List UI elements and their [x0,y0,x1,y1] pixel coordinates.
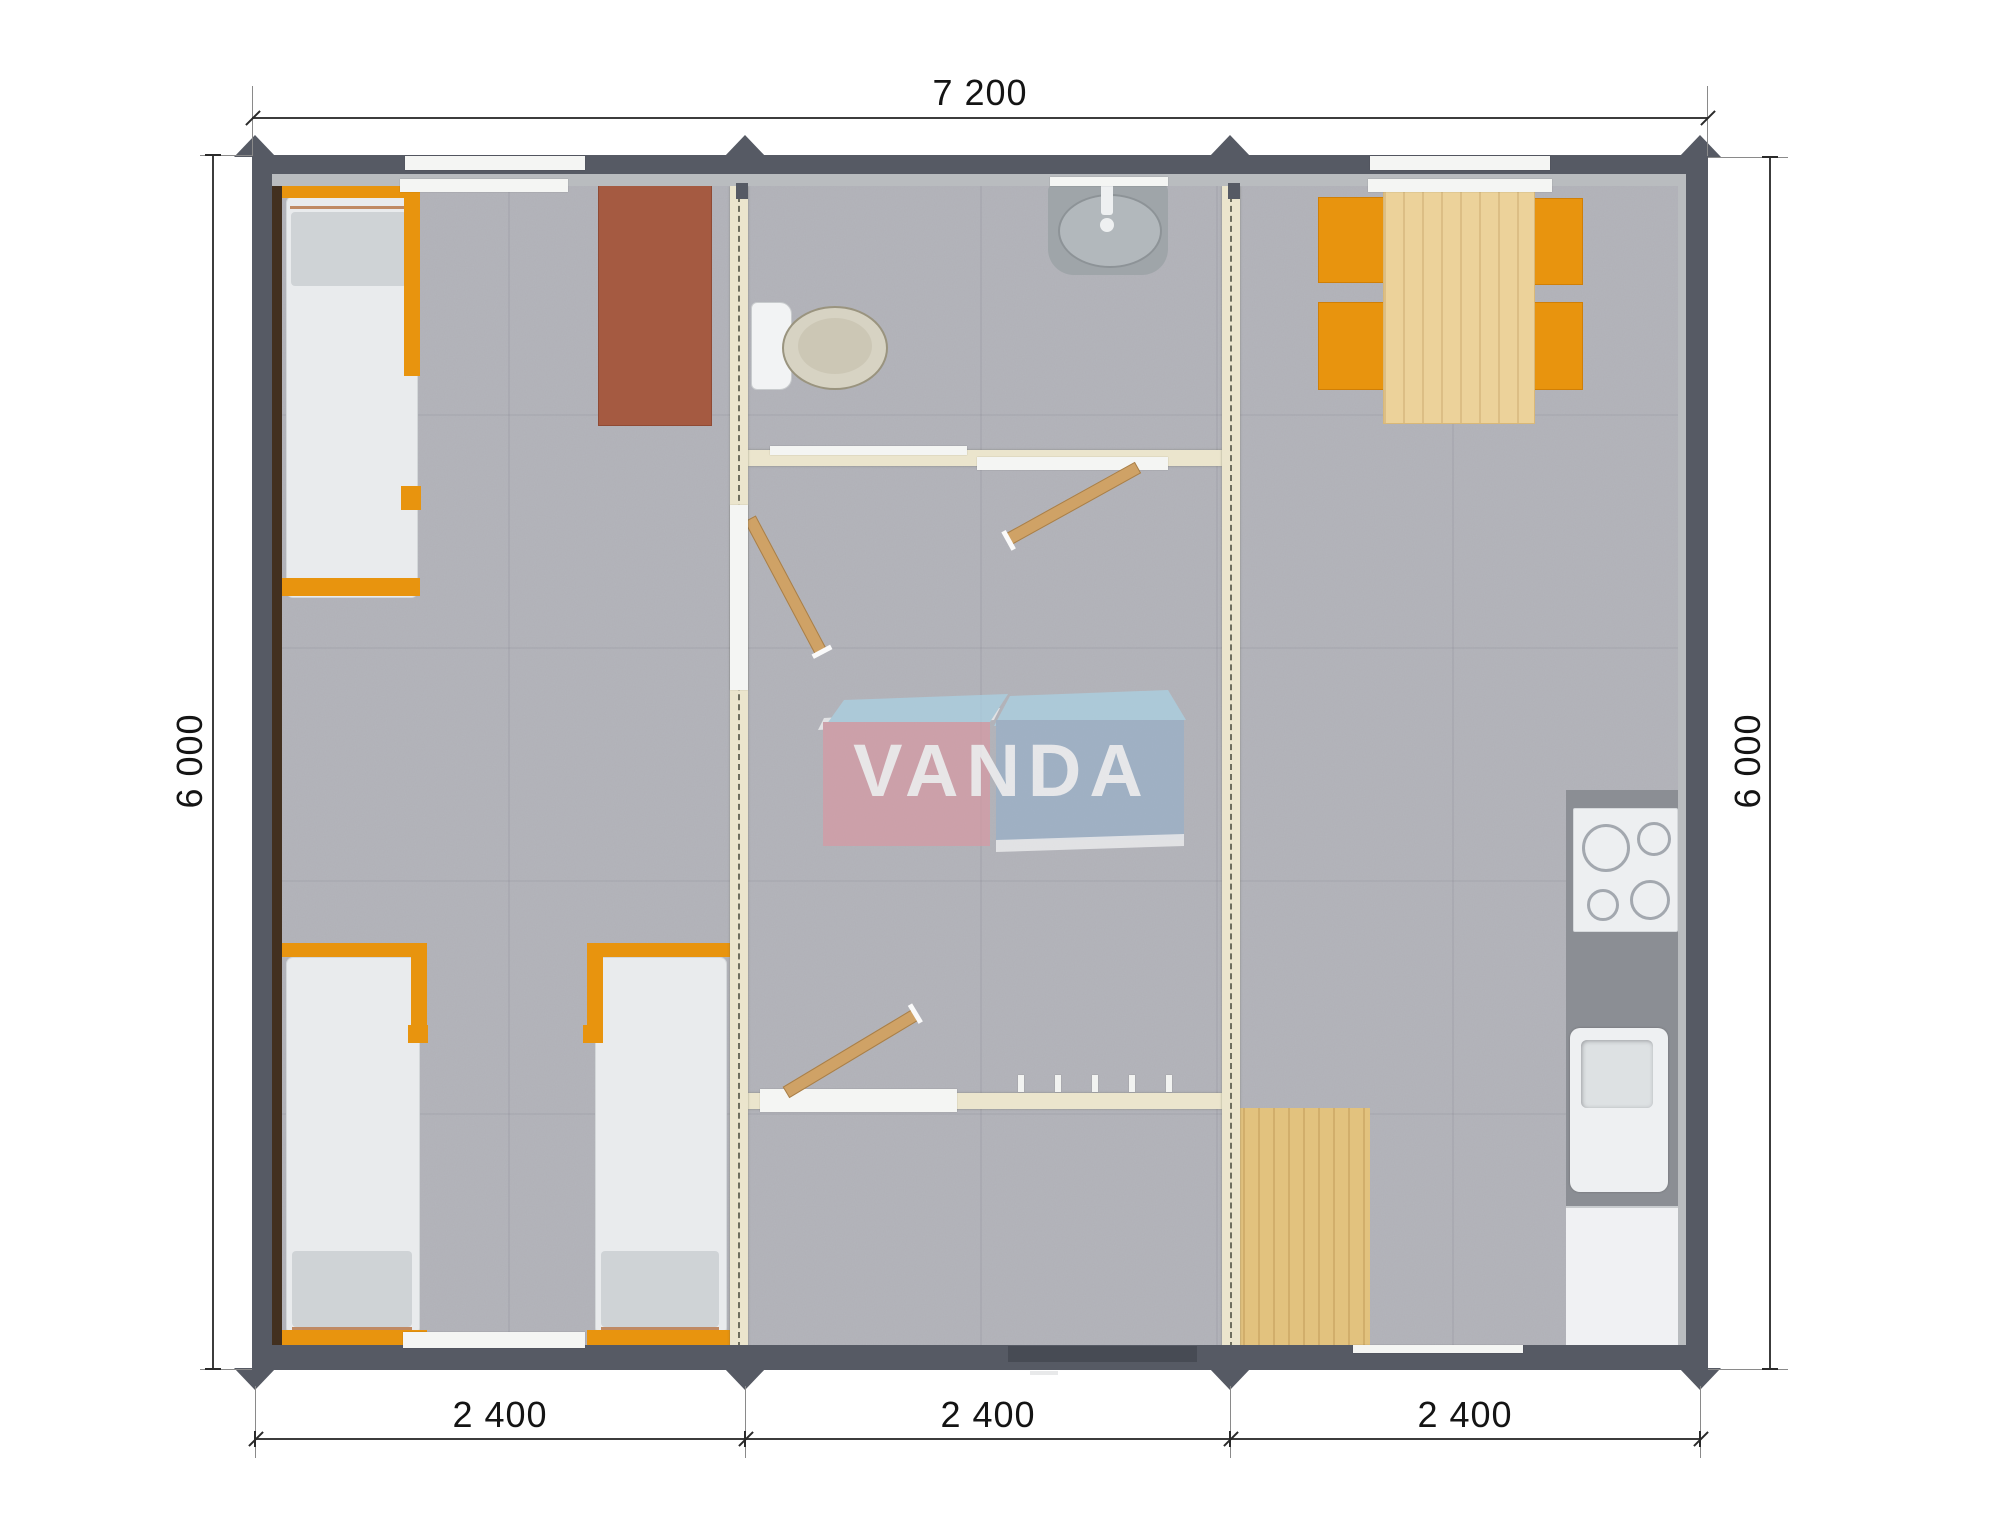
junction-center-line [1230,186,1232,1348]
junction-marker-top [234,135,276,157]
dimension-label-depth-left: 6 000 [169,661,211,861]
dimension-line [255,1438,1700,1440]
dimension-label-depth-right: 6 000 [1727,661,1769,861]
bed-pillow [291,212,407,286]
dimension-label-module2: 2 400 [888,1394,1088,1436]
extension-line [1700,1386,1701,1458]
chair [1318,302,1388,390]
bedroom-door-opening [730,505,748,690]
bed-headboard-line [290,206,410,209]
vanda-logo-text: VANDA [812,728,1192,813]
junction-marker-top [1679,135,1721,157]
chair [1527,198,1583,285]
faucet-knob [1100,218,1114,232]
wardrobe [598,183,712,426]
junction-center-line [738,186,740,1348]
dimension-label-module1: 2 400 [400,1394,600,1436]
junction-tab [1228,183,1240,199]
dimension-line [252,117,1708,119]
junction-tab [736,183,748,199]
bed-frame-top-rail [587,943,731,957]
cooktop-burner [1637,822,1671,856]
junction-marker-top [724,135,766,157]
window-outer-module3 [1370,156,1550,170]
wc-wall-sill [770,446,967,455]
bed-frame-post [583,1025,603,1043]
coat-hook [1166,1075,1172,1092]
bed-frame-side-rail [587,943,603,1031]
bed-pillow [292,1251,412,1327]
cooktop-burner [1630,880,1670,920]
dimension-cross [205,1368,221,1370]
toilet-seat [798,318,872,374]
coat-hook [1055,1075,1061,1092]
chair [1318,197,1388,283]
extension-line [255,1386,256,1458]
vanda-logo: VANDA [812,686,1192,856]
bed-frame-post [401,486,421,510]
dimension-cross [1762,1368,1778,1370]
window-sill-wc [1050,177,1168,186]
bed-frame-side-rail [404,184,420,376]
extension-line [745,1386,746,1458]
floor-plan: VANDA 7 200 [0,0,2000,1537]
dimension-line [1769,157,1771,1370]
outer-wall-right [1686,155,1708,1370]
bed-frame-post [408,1025,428,1043]
chair [1527,302,1583,390]
kitchen-cabinet [1566,1206,1683,1350]
window-sill-module3-bottom [1353,1345,1523,1353]
module-junction-wall-right [1222,186,1240,1348]
window-sill-module3-top [1368,179,1552,192]
window-outer-module1 [405,156,585,170]
cooktop-burner [1582,824,1630,872]
window-sill-module1-bottom [403,1332,585,1348]
dining-table [1383,186,1535,424]
extension-line [252,86,253,156]
cooktop-burner [1587,889,1619,921]
junction-marker-top [1209,135,1251,157]
extension-line [1230,1386,1231,1458]
outer-wall-left [252,155,272,1370]
extension-line [1707,86,1708,156]
bed-pillow [601,1251,719,1327]
entrance-door-handle [1030,1371,1058,1375]
window-sill-module1-top [400,179,568,192]
coat-hook [1129,1075,1135,1092]
dimension-line [212,155,214,1370]
faucet [1101,183,1113,215]
coat-hook [1018,1075,1024,1092]
bed-frame-top-rail [282,943,427,957]
kitchen-sink-basin [1581,1040,1653,1108]
wall-lining [272,186,282,1345]
floor-mat [1228,1108,1370,1348]
bed-frame-bottom-rail [282,578,420,596]
coat-hook [1092,1075,1098,1092]
dimension-label-module3: 2 400 [1365,1394,1565,1436]
dimension-cross [1762,156,1778,158]
wc-door-threshold [977,457,1168,470]
dimension-cross [205,154,221,156]
module-junction-wall-left [730,186,748,1348]
entrance-door [1008,1346,1197,1362]
wall-inner-band-right [1678,186,1686,1345]
bed-frame-side-rail [411,943,427,1031]
dimension-label-width: 7 200 [880,72,1080,114]
